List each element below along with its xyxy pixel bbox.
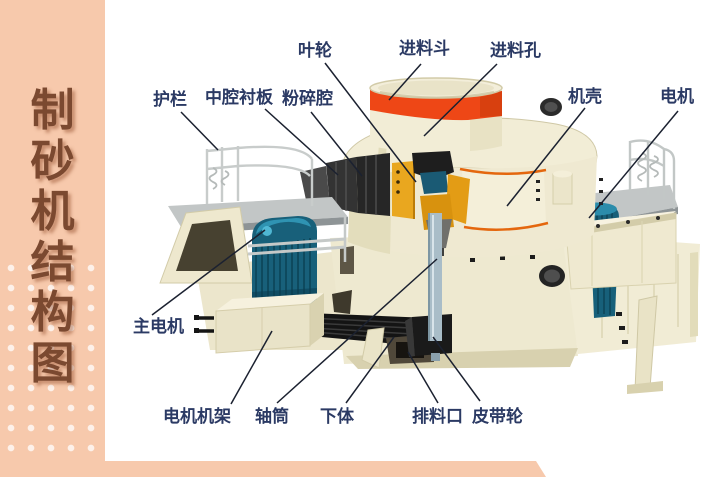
page-title-char: 构 bbox=[31, 288, 75, 339]
page-title-char: 机 bbox=[31, 187, 75, 238]
label-motor: 电机 bbox=[660, 88, 694, 105]
label-belt-pulley: 皮带轮 bbox=[472, 408, 523, 425]
page-title-char: 制 bbox=[31, 86, 75, 137]
label-feed-hole: 进料孔 bbox=[490, 42, 541, 59]
bottom-accent-band bbox=[0, 461, 546, 477]
label-casing: 机壳 bbox=[568, 88, 602, 105]
part-labels: 叶轮进料斗进料孔护栏中腔衬板粉碎腔机壳电机主电机电机机架轴筒下体排料口皮带轮 bbox=[0, 0, 720, 477]
label-impeller: 叶轮 bbox=[298, 42, 332, 59]
label-middle-cavity-liner: 中腔衬板 bbox=[205, 89, 273, 106]
title-banner: 制砂机结构图 bbox=[0, 0, 105, 477]
label-guardrail: 护栏 bbox=[153, 91, 187, 108]
label-crushing-chamber: 粉碎腔 bbox=[282, 90, 333, 107]
label-shaft-tube: 轴筒 bbox=[255, 408, 289, 425]
label-motor-frame: 电机机架 bbox=[163, 408, 231, 425]
page-title: 制砂机结构图 bbox=[0, 86, 105, 390]
page-title-char: 图 bbox=[31, 339, 75, 390]
diagram-page: 叶轮进料斗进料孔护栏中腔衬板粉碎腔机壳电机主电机电机机架轴筒下体排料口皮带轮 制… bbox=[0, 0, 720, 477]
page-title-char: 结 bbox=[31, 238, 75, 289]
label-feed-hopper: 进料斗 bbox=[399, 40, 450, 57]
label-discharge-port: 排料口 bbox=[412, 408, 463, 425]
page-title-char: 砂 bbox=[31, 137, 75, 188]
label-lower-body: 下体 bbox=[320, 408, 354, 425]
label-main-motor: 主电机 bbox=[133, 318, 184, 335]
